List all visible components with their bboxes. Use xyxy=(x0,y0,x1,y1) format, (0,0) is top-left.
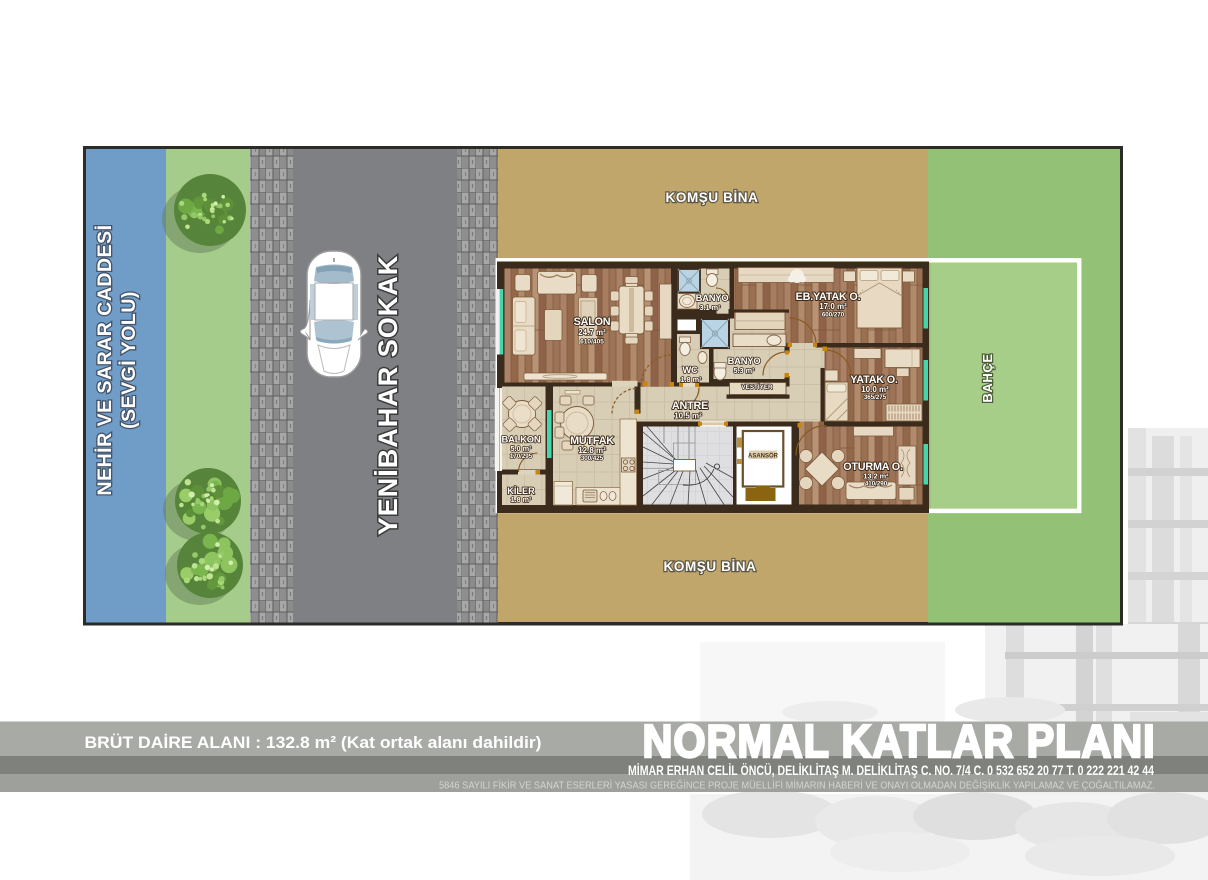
svg-text:170/295: 170/295 xyxy=(510,453,533,460)
svg-text:NORMAL KATLAR PLANI: NORMAL KATLAR PLANI xyxy=(643,715,1156,767)
svg-text:SALON: SALON xyxy=(574,316,611,328)
svg-text:KOMŞU BİNA: KOMŞU BİNA xyxy=(664,559,757,574)
svg-text:NEHİR VE SARAR CADDESİ: NEHİR VE SARAR CADDESİ xyxy=(93,224,116,495)
svg-text:BANYO: BANYO xyxy=(696,292,729,303)
svg-text:5.0 m²: 5.0 m² xyxy=(510,444,532,453)
svg-text:BRÜT DAİRE ALANI : 132.8 m² (K: BRÜT DAİRE ALANI : 132.8 m² (Kat ortak a… xyxy=(85,733,542,752)
svg-text:WC: WC xyxy=(682,364,698,375)
svg-text:YENİBAHAR SOKAK: YENİBAHAR SOKAK xyxy=(373,255,403,536)
svg-text:1.8 m²: 1.8 m² xyxy=(511,495,532,504)
svg-text:600/270: 600/270 xyxy=(822,312,845,319)
svg-text:300/425: 300/425 xyxy=(581,455,604,462)
svg-text:(SEVGİ YOLU): (SEVGİ YOLU) xyxy=(117,291,140,429)
svg-text:BAHÇE: BAHÇE xyxy=(980,353,995,402)
svg-text:10.0 m²: 10.0 m² xyxy=(861,385,889,394)
svg-text:610/405: 610/405 xyxy=(580,339,604,346)
svg-text:3.1 m²: 3.1 m² xyxy=(699,303,721,312)
svg-text:12.8 m²: 12.8 m² xyxy=(578,446,606,455)
svg-text:ASANSÖR: ASANSÖR xyxy=(748,452,779,459)
svg-text:13.2 m²: 13.2 m² xyxy=(863,472,889,481)
svg-text:17.0 m²: 17.0 m² xyxy=(819,302,847,311)
svg-text:5846 SAYILI FİKİR VE SANAT ESE: 5846 SAYILI FİKİR VE SANAT ESERLERİ YASA… xyxy=(439,779,1155,792)
svg-text:1.8 m²: 1.8 m² xyxy=(680,375,702,384)
svg-text:BANYO: BANYO xyxy=(728,355,761,366)
svg-text:ANTRE: ANTRE xyxy=(672,400,708,412)
svg-text:MİMAR ERHAN CELİL ÖNCÜ, DELİK: MİMAR ERHAN CELİL ÖNCÜ, DELİKLİTAŞ M. DE… xyxy=(628,763,1154,778)
svg-text:365/275: 365/275 xyxy=(864,394,887,401)
svg-text:410/290: 410/290 xyxy=(865,481,888,488)
svg-text:VESTİYER: VESTİYER xyxy=(741,383,773,391)
svg-text:KOMŞU BİNA: KOMŞU BİNA xyxy=(666,190,759,205)
svg-text:5.3 m²: 5.3 m² xyxy=(733,366,755,375)
svg-text:10.5 m²: 10.5 m² xyxy=(674,412,702,421)
svg-text:BALKON: BALKON xyxy=(502,434,541,445)
svg-text:24.7 m²: 24.7 m² xyxy=(578,328,606,337)
